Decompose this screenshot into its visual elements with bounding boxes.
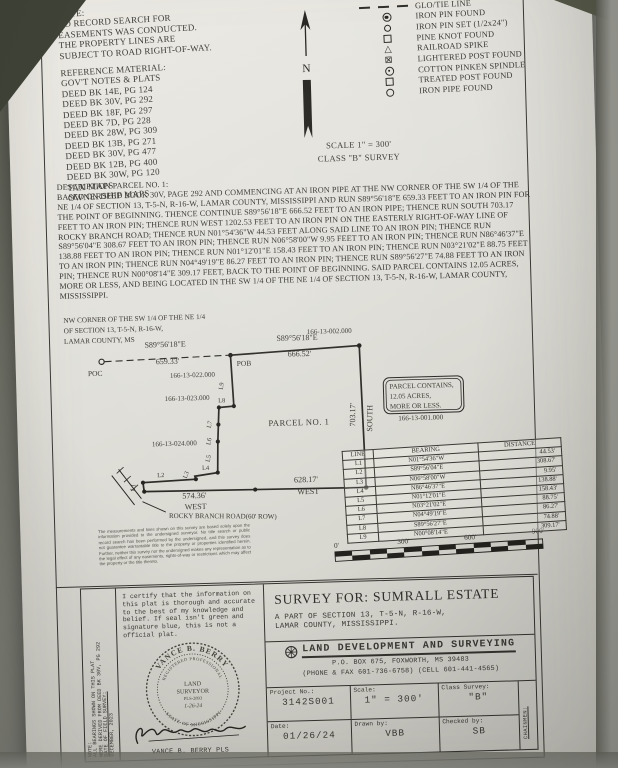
- drawn-by-value: VBB: [355, 727, 436, 740]
- segment-label: L5: [205, 454, 213, 462]
- description-body: BASED ON DEED BOOK 30V, PAGE 292 AND COM…: [57, 180, 534, 302]
- class-survey-value: "B": [441, 690, 515, 703]
- checked-by-value: SB: [442, 724, 516, 737]
- certification-text: I certify that the information on this p…: [122, 590, 258, 641]
- signature-icon: [127, 720, 254, 748]
- south-line-direction-west: WEST: [185, 502, 207, 512]
- south-line-direction-east: WEST: [297, 487, 319, 497]
- segment-label: L3: [182, 470, 191, 479]
- south-line-distance-east: 628.17': [294, 475, 319, 485]
- project-number-cell: Project No.: 3142S001: [267, 686, 352, 722]
- title-block: NOTE: ALL BEARINGS SHOWN ON THIS PLAT WE…: [80, 576, 539, 763]
- survey-for-panel: SURVEY FOR: SUMRALL ESTATE A PART OF SEC…: [264, 577, 535, 642]
- survey-sheet: NOTE: NO RECORD SEARCH FOR EASEMENTS WAS…: [4, 0, 613, 768]
- plat-area: NW CORNER OF THE SW 1/4 OF THE NE 1/4 OF…: [56, 288, 594, 595]
- south-line-distance-west: 574.36': [182, 491, 207, 501]
- north-label: N: [302, 63, 311, 75]
- title-block-right: SURVEY FOR: SUMRALL ESTATE A PART OF SEC…: [264, 577, 538, 756]
- survey-photo: NOTE: NO RECORD SEARCH FOR EASEMENTS WAS…: [0, 0, 618, 768]
- surveyor-disclaimer: The measurements and lines shown on this…: [98, 522, 252, 567]
- corner-monuments: [137, 343, 368, 496]
- date-cell: Date: 01/26/24: [268, 720, 353, 756]
- tract-id-tie: 166-13-022.000: [170, 371, 216, 380]
- tract-id-west-upper: 166-13-023.000: [165, 394, 211, 403]
- segment-label: L9: [218, 382, 226, 390]
- tie-bearing: S89°56'18"E: [144, 339, 186, 349]
- poc-label: POC: [88, 369, 103, 378]
- tie-line-icon: [357, 5, 415, 10]
- nw-corner-line: NW CORNER OF THE SW 1/4 OF THE NE 1/4: [63, 313, 205, 325]
- segment-label: L1: [130, 484, 138, 492]
- parcel-label: PARCEL NO. 1: [268, 416, 329, 428]
- scale-value: 1" = 300': [354, 693, 435, 706]
- segment-label: L2: [157, 472, 164, 479]
- parcel-note-line: PARCEL CONTAINS,: [389, 381, 454, 391]
- segment-label: L4: [202, 465, 210, 472]
- pob-label: POB: [237, 359, 252, 368]
- company-panel: LAND DEVELOPMENT AND SURVEYING P.O. BOX …: [265, 635, 535, 688]
- tract-id-east: 166-13-001.000: [398, 413, 444, 422]
- scale-cell: Scale: 1" = 300': [350, 684, 439, 720]
- photo-background-edge: [596, 0, 618, 768]
- drawn-by-cell: Drawn by: VBB: [351, 717, 440, 753]
- scale-bar-label: 0': [334, 541, 340, 550]
- east-line-distance: 703.17': [348, 402, 357, 426]
- east-line-direction: SOUTH: [365, 405, 374, 432]
- segment-label: L7: [206, 420, 214, 429]
- checked-by-cell: Checked by: SB: [439, 715, 519, 751]
- tract-id-west-lower: 166-13-024.000: [152, 439, 198, 448]
- segment-label: L6: [205, 437, 213, 445]
- notes-block: NOTE: NO RECORD SEARCH FOR EASEMENTS WAS…: [57, 0, 221, 203]
- photo-background-edge: [0, 752, 618, 768]
- seal-line: SURVEYOR: [176, 688, 210, 695]
- info-grid: Project No.: 3142S001 Scale: 1" = 300' C…: [267, 681, 538, 756]
- seal-date: 1-26-24: [184, 703, 202, 710]
- road-label: ROCKY BRANCH ROAD(60' ROW): [169, 512, 277, 521]
- parcel-contains-box: PARCEL CONTAINS, 12.05 ACRES, MORE OR LE…: [383, 376, 464, 414]
- scale-note: SCALE 1" = 300' CLASS "B" SURVEY: [283, 136, 434, 165]
- seal-license: PLS-2893: [183, 695, 202, 701]
- north-line-bearing: S89°56'18"E: [276, 333, 318, 343]
- nw-corner-line: OF SECTION 13, T-5-N, R-16-W,: [64, 325, 164, 336]
- cell-line: L9: [347, 532, 379, 543]
- parcel-note-line: 12.05 ACRES,: [390, 392, 432, 401]
- survey-wheel-icon: [285, 645, 298, 658]
- north-arrow-icon: N: [292, 10, 322, 147]
- class-survey-cell: Class Survey: "B": [438, 681, 518, 717]
- poc-monument: [99, 359, 104, 364]
- iron-pipe-icon: [361, 87, 419, 98]
- line-table: LINE BEARING DISTANCE L1N01°54'36"W44.53…: [342, 437, 567, 544]
- project-number-value: 3142S001: [270, 695, 347, 708]
- parcel-note-line: MORE OR LESS.: [390, 401, 442, 410]
- north-line-distance: 666.52': [288, 349, 312, 359]
- parcel-boundary-lines: [104, 346, 366, 514]
- side-notes: NOTE: ALL BEARINGS SHOWN ON THIS PLAT WE…: [84, 592, 116, 758]
- legend: PROPERTY LINE GLO/TIE LINE IRON PIN FOUN…: [356, 0, 526, 99]
- tie-distance: 659.33': [156, 357, 180, 367]
- seal-line: LAND: [184, 681, 202, 687]
- certification-panel: I certify that the information on this p…: [116, 584, 269, 760]
- chainmen-strip: CHAINMEN:: [518, 681, 538, 749]
- survey-for-title: SURVEY FOR: SUMRALL ESTATE: [274, 585, 523, 608]
- side-notes-strip: NOTE: ALL BEARINGS SHOWN ON THIS PLAT WE…: [81, 588, 121, 761]
- date-value: 01/26/24: [271, 729, 348, 742]
- nw-corner-line: LAMAR COUNTY, MS: [64, 336, 135, 346]
- chainmen-label: CHAINMEN:: [522, 706, 529, 739]
- segment-label: L8: [218, 397, 225, 404]
- legal-description: DESCRIPTION PARCEL NO. 1: BASED ON DEED …: [57, 170, 534, 302]
